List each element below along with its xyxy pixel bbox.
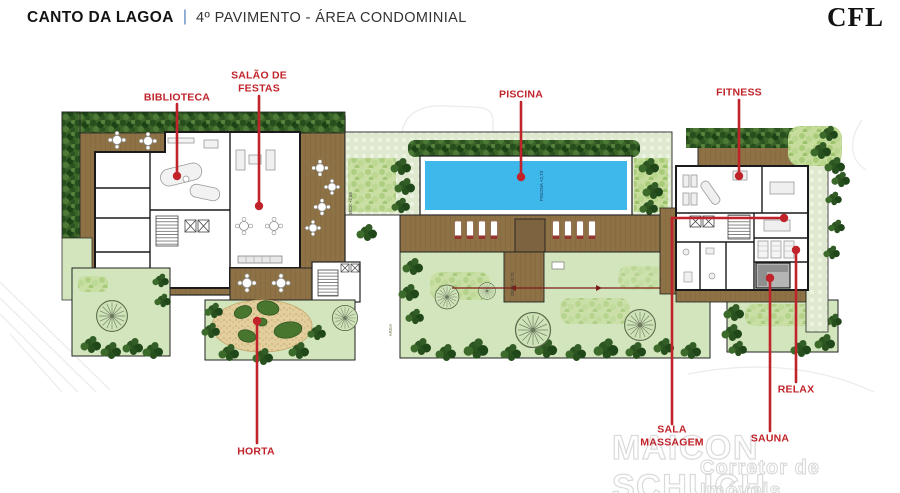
horta-garden [201,299,357,365]
label-piscina: PISCINA [499,89,543,102]
label-horta: HORTA [237,446,275,459]
stairs [156,216,178,246]
pool-hedge [408,140,640,157]
lower-left-garden [72,268,171,359]
label-salao-line1: SALÃO DE [231,69,287,82]
label-salao-line2: FESTAS [231,82,287,95]
pool-level-text: PISCINA +2,73 [539,170,544,201]
left-top-hedge [62,112,345,133]
relax-loungers [758,241,794,258]
floor-plan-page: CANTO DA LAGOA | 4º PAVIMENTO - ÁREA CON… [0,0,900,493]
label-sauna: SAUNA [751,433,789,446]
deck-level-text: DECK +2,70 [510,272,515,296]
swimming-pool [420,156,632,215]
right-left-deck [660,208,676,294]
label-sala-massagem: SALA MASSAGEM [640,423,703,448]
label-massagem-line2: MASSAGEM [640,436,703,449]
bar-counter [238,256,282,263]
floor-plan-drawing: PISCINA +2,73 DECK +2,70 DECK +2,68 AREI… [0,0,900,493]
right-complex [660,126,850,332]
massage-table [764,220,790,231]
deck-planter [515,219,545,252]
label-massagem-line1: SALA [640,423,703,436]
left-building [95,132,300,288]
deck-level-text-2: DECK +2,68 [348,192,353,216]
label-biblioteca: BIBLIOTECA [144,92,210,105]
pool-complex [345,132,672,252]
left-side-hedge [62,112,80,238]
label-relax: RELAX [778,384,815,397]
right-building [676,166,808,290]
right-paving [806,148,828,332]
sand-text: AREIA [388,324,393,337]
label-salao-de-festas: SALÃO DE FESTAS [231,69,287,94]
watermark-tagline: Corretor de Imóveis [700,457,900,493]
label-fitness: FITNESS [716,87,762,100]
stair-block [312,262,360,302]
